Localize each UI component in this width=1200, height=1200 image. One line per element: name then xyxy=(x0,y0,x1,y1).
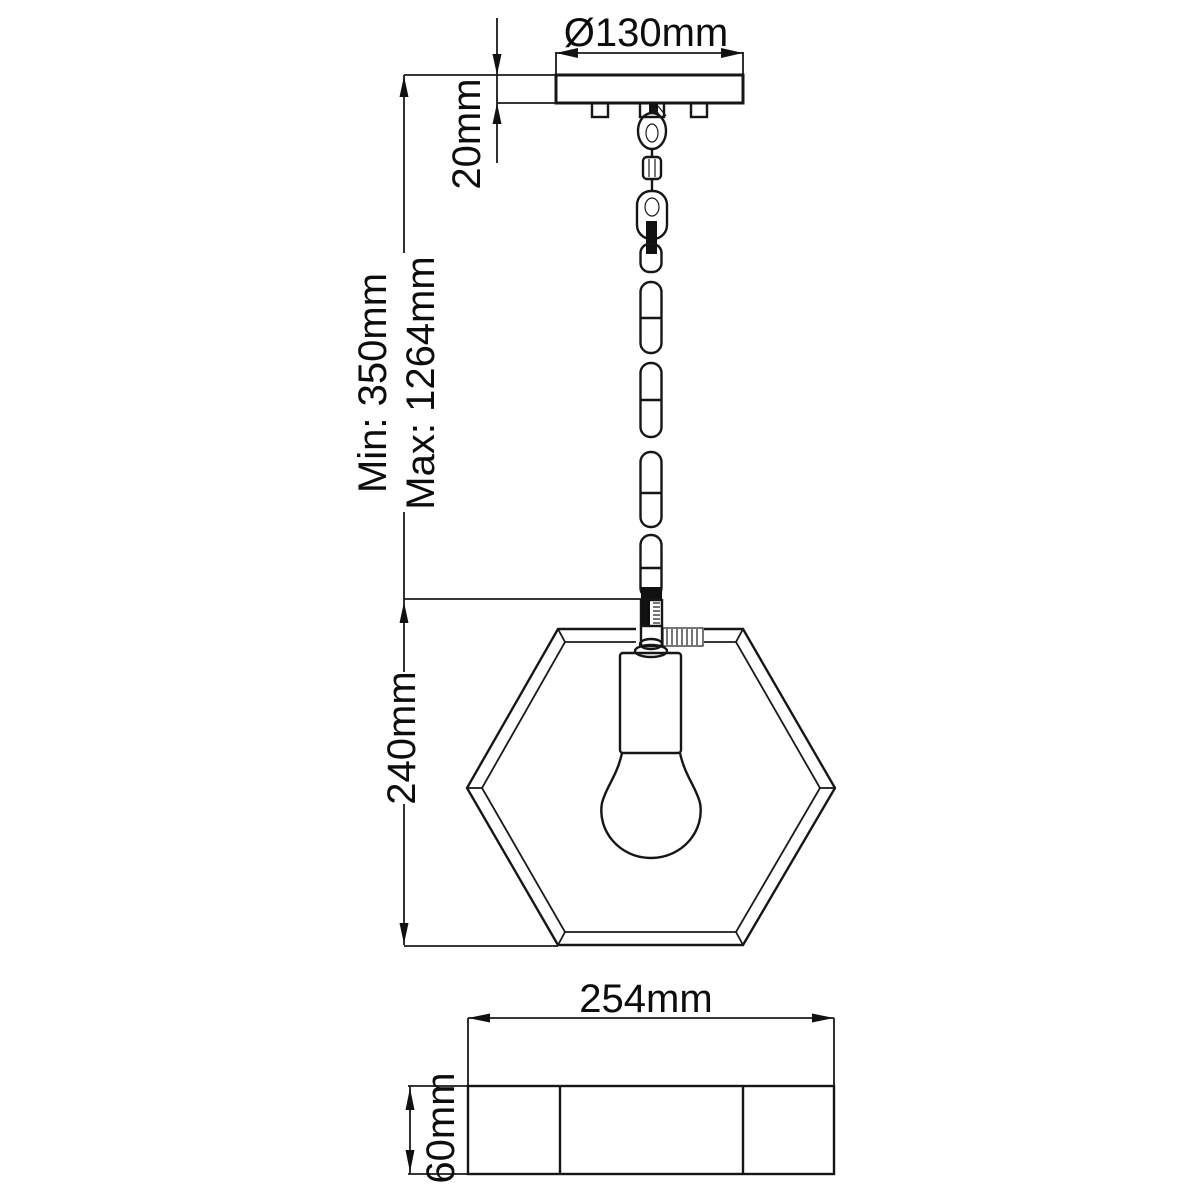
base-profile xyxy=(468,1086,834,1174)
pendant-light-dimension-drawing: Ø130mm 20mm Min: 350mm Max: 1264mm 240mm… xyxy=(0,0,1200,1200)
light-bulb xyxy=(601,753,700,858)
chain-links xyxy=(641,244,662,598)
bottom-view xyxy=(468,1086,834,1174)
hexagon-frame-miters xyxy=(467,629,835,945)
arrow-left-icon xyxy=(468,1014,490,1023)
hanging-loop-hole xyxy=(646,124,658,142)
fixture-width-dimension: 254mm xyxy=(579,977,712,1021)
hexagon-inner-frame xyxy=(482,642,820,932)
suspension-chain xyxy=(637,103,667,628)
fixture-height-dimension: 240mm xyxy=(380,671,424,804)
lamp-socket xyxy=(620,653,681,753)
canopy-plate xyxy=(556,75,743,103)
hub-threads xyxy=(667,629,697,645)
arrow-down-icon xyxy=(406,1150,415,1172)
arrow-up-icon xyxy=(400,76,409,97)
chain-link xyxy=(641,452,662,527)
arrow-down-icon xyxy=(400,923,409,944)
hexagon-shade xyxy=(467,626,835,945)
canopy-height-dimension: 20mm xyxy=(445,78,489,189)
drop-max-dimension: Max: 1264mm xyxy=(399,256,443,509)
stem-threads xyxy=(653,603,660,623)
canopy-tab-left xyxy=(592,103,608,117)
hexagon-outer-frame xyxy=(467,629,835,945)
lamp-holder-and-bulb xyxy=(601,653,700,858)
canopy-diameter-dimension: Ø130mm xyxy=(564,11,729,55)
diagram-canvas: Ø130mm 20mm Min: 350mm Max: 1264mm 240mm… xyxy=(0,0,1200,1200)
chain-ferrule xyxy=(643,157,661,179)
base-height-dimension: 60mm xyxy=(419,1072,463,1183)
shackle-hole xyxy=(645,198,659,216)
hanging-loop xyxy=(638,113,666,149)
stem-shadow xyxy=(641,600,650,628)
stem-locknut xyxy=(641,587,662,599)
arrow-up-icon xyxy=(400,602,409,623)
arrow-right-icon xyxy=(812,1014,834,1023)
shackle-pin xyxy=(646,221,657,254)
drop-min-dimension: Min: 350mm xyxy=(351,273,395,493)
arrow-up-icon xyxy=(493,103,502,124)
canopy-tab-right xyxy=(691,103,707,117)
side-view xyxy=(467,75,835,945)
arrow-up-icon xyxy=(406,1088,415,1110)
arrow-down-icon xyxy=(493,54,502,75)
dimension-annotations: Ø130mm 20mm Min: 350mm Max: 1264mm 240mm… xyxy=(351,11,834,1184)
